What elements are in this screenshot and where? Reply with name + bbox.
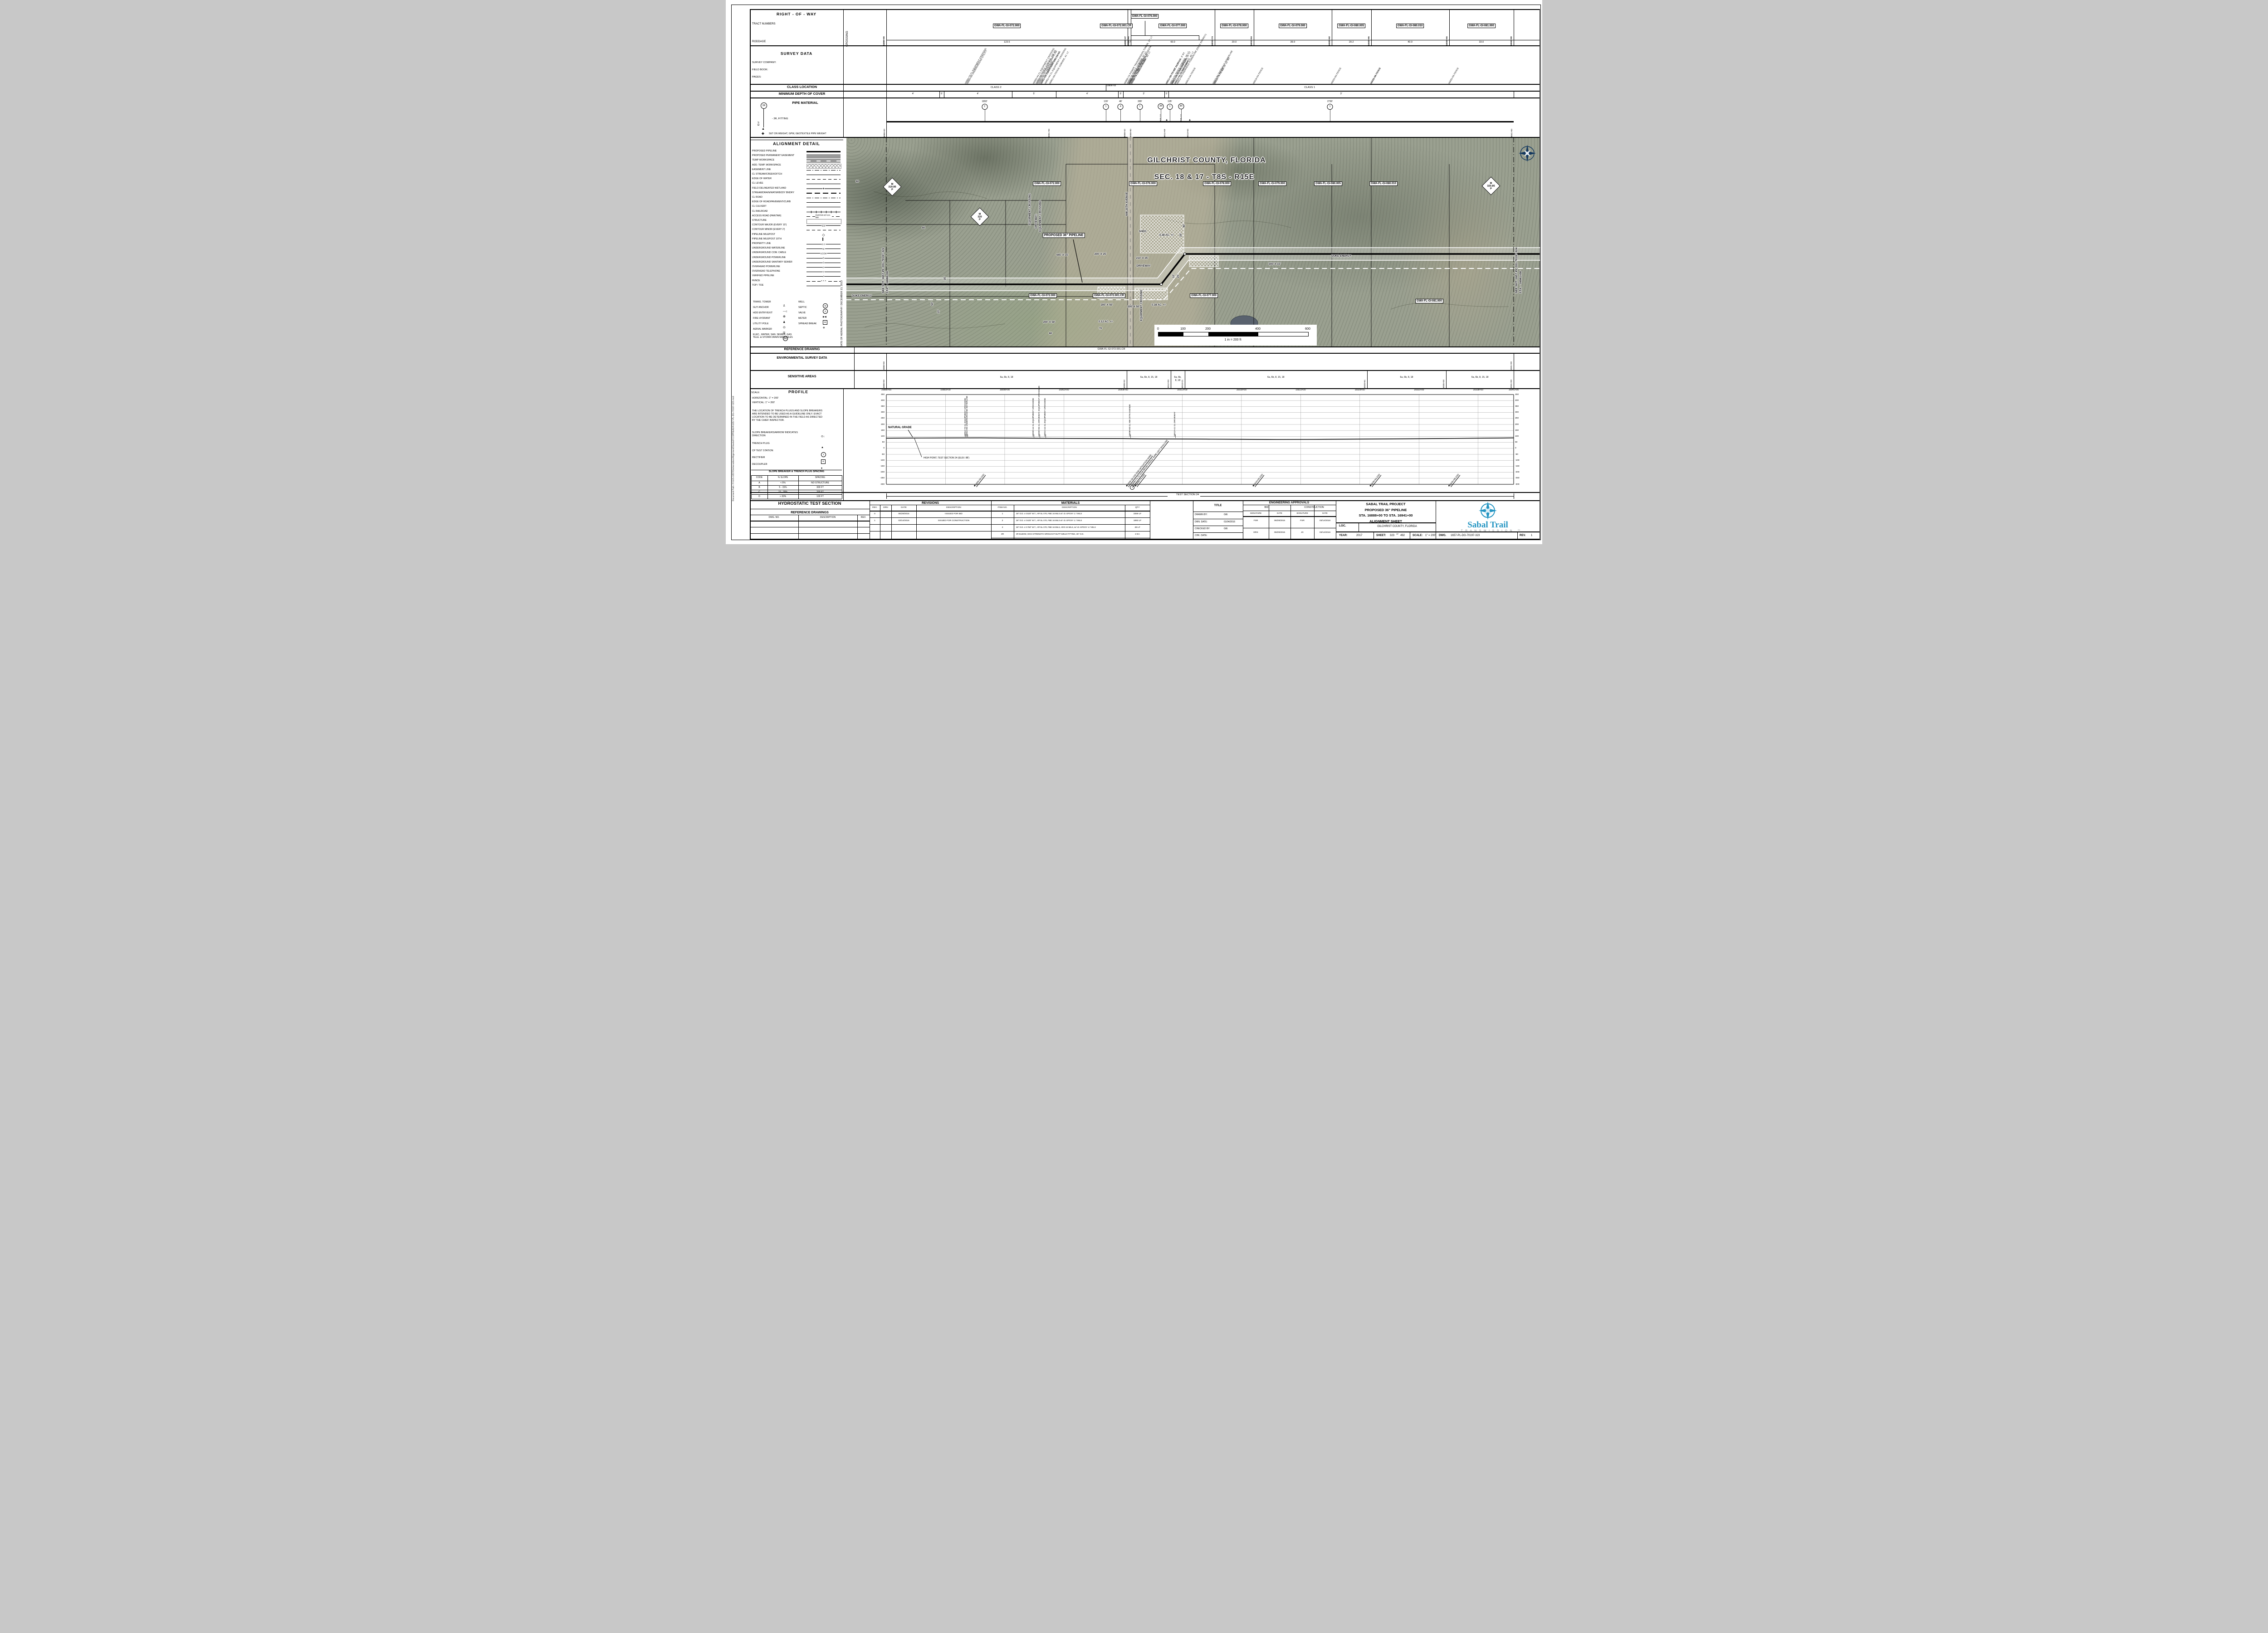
table-rule: [1410, 531, 1410, 540]
depth-boundary: [1164, 91, 1165, 97]
table-rule: [870, 531, 991, 531]
legend-item-label: CL ROAD: [752, 196, 763, 199]
section-rule: [750, 91, 1540, 92]
tract-number-box: GWA-FL-GI-072.001.CR: [1100, 24, 1133, 28]
table-rule: [1336, 522, 1436, 523]
legend-symbol-rail: [807, 210, 841, 214]
class-segment: CLASS 2: [991, 86, 1002, 89]
legend-item-label: PIPELINE MILEPOST: [752, 234, 775, 236]
material-qty: 1893 LF: [1134, 520, 1142, 522]
table-rule: [751, 470, 842, 470]
row-title: REFERENCE DRAWING: [784, 348, 820, 351]
bottom-col-rule: [1193, 500, 1193, 540]
table-rule: [750, 515, 870, 515]
map-annotation: 60: [856, 180, 859, 183]
tract-bracket: [1131, 35, 1199, 36]
row-title: CLASS LOCATION: [787, 85, 817, 89]
table-rule: [1359, 522, 1359, 531]
checked-by-label: CHECKED BY:: [1195, 528, 1210, 530]
spacing-col-header: % SLOPE: [778, 477, 788, 479]
loc-value: GILCHRIST COUNTY, FLORIDA: [1377, 525, 1417, 528]
bottom-col-rule: [870, 500, 870, 540]
table-rule: [751, 499, 842, 499]
map-annotation: 10': [1173, 274, 1175, 278]
map-scale-bar: 01002004006001 in = 200 ft: [1154, 325, 1317, 346]
sensitive-station: 16941+00: [1510, 380, 1513, 389]
crossing-tick: [1034, 434, 1034, 438]
approval-cell: JC: [1301, 531, 1304, 534]
table-rule: [750, 521, 870, 522]
survey-entry: 16915+75 P.I. 15° 35' 14" RT.: [1214, 57, 1231, 85]
legend-item-label: ACCESS ROAD (PAR/TAR): [752, 215, 781, 217]
sheet-label: SHEET:: [1376, 534, 1386, 537]
legend-item-label: FIELD DELINEATED WETLAND: [752, 187, 786, 190]
table-rule: [870, 517, 991, 518]
callout-leader: [1170, 109, 1170, 121]
profile-legend-label: SLOPE BREAKERS/ARROW INDICATES: [752, 432, 798, 434]
sensitive-value: 6a, 6b, 8, 18: [1000, 376, 1013, 379]
elev-label-left: 400: [881, 400, 885, 402]
tract-number-box: GWA-FL-GI-081.000: [1467, 24, 1496, 28]
sensitive-station: 16913+21: [1182, 380, 1184, 389]
table-rule: [891, 505, 892, 540]
project-line: SABAL TRAIL PROJECT: [1366, 502, 1405, 506]
milepost-text: M320P: [978, 213, 982, 221]
elev-label-right: 450: [1515, 394, 1519, 396]
milepost-text: M320.85P: [1487, 182, 1495, 190]
pipe-item-circle: 2: [982, 104, 987, 110]
legend-MH-icon: MH: [783, 334, 788, 341]
sensitive-station: 16912+03: [1168, 380, 1170, 389]
table-rule: [751, 475, 842, 476]
profile-scale-label: SCALE:: [751, 392, 760, 395]
table-rule: [1125, 505, 1125, 540]
elev-label-right: 250: [1515, 417, 1519, 419]
depth-boundary: [1118, 91, 1119, 97]
elev-label-right: -200: [1515, 471, 1520, 473]
spacing-table-title: SLOPE BREAKER & TRENCH PLUG SPACING: [769, 471, 824, 473]
map-section-title: SEC. 18 & 17 - T8S - R15E: [1154, 173, 1255, 181]
map-annotation: SHED: [1139, 230, 1147, 233]
roddage-value: 43.0: [1170, 41, 1175, 44]
tract-boundary: [1254, 9, 1254, 45]
scale-label: SCALE:: [1413, 534, 1422, 537]
crossing-tick: [1040, 434, 1040, 438]
elev-label-left: 150: [881, 429, 885, 432]
outer-frame: [731, 5, 732, 540]
map-annotation: 35': [944, 277, 947, 280]
legend-symbol-mp10: ▍: [807, 238, 841, 242]
material-item: 4: [1002, 526, 1003, 529]
section-rule: [750, 97, 1540, 98]
legend-symbol-label: AERIAL MARKER: [753, 328, 772, 331]
roddage-value: 20.0: [1232, 41, 1237, 44]
see-sheet-note: STA. - 16941+00: [1520, 271, 1523, 293]
legend-symbol-thin: [807, 182, 841, 186]
spacing-cell: 100 FT: [816, 496, 824, 498]
map-parcel-label: GWA-FL-GI-072.000: [1033, 181, 1061, 186]
table-rule: [916, 505, 917, 540]
elev-label-right: 50: [1515, 441, 1517, 444]
map-parcel-label: GWA-FL-GI-080.005: [1314, 181, 1342, 186]
env-station: 16941+00: [1510, 361, 1513, 371]
pipe-item-circle: 1: [1327, 104, 1333, 110]
outer-frame: [1540, 5, 1541, 540]
material-qty: 3359 LF: [1134, 513, 1142, 515]
aerial-map: [846, 137, 1540, 346]
approvals-col-header: SIGNATURE: [1296, 512, 1308, 515]
test-section-tick: [886, 493, 887, 499]
row-title: SURVEY DATA: [781, 52, 812, 56]
contour-line: [865, 323, 1005, 328]
tract-number-box: GWA-FL-GI-080.010: [1396, 24, 1424, 28]
table-rule: [1243, 511, 1336, 511]
legend-symbol-label: HDD ENTRY/EXIT: [753, 312, 772, 314]
roddage-value: 123.5: [1004, 41, 1010, 44]
crossing-tick: [1175, 434, 1176, 438]
map-annotation: 0.38 AC. +/-: [1152, 304, 1166, 307]
legend-item-label: PROPERTY LINE: [752, 243, 771, 245]
legend-symbol-lbl: E: [807, 256, 841, 260]
alignment-sheet: RIGHT - OF - WAY TRACT NUMBERS RODDAGE C…: [726, 0, 1542, 544]
map-parcel-label: GWA-FL-GI-078.000: [1203, 181, 1231, 186]
table-rule: [750, 509, 870, 509]
roddage-value: 1.7: [1127, 41, 1131, 44]
tract-boundary: [1215, 9, 1215, 45]
revision-cell: 1: [874, 520, 875, 522]
test-section-label: TEST SECTION 24: [1175, 493, 1200, 496]
weight-marker-icon: ✚: [762, 132, 764, 136]
elev-label-right: 350: [1515, 405, 1519, 408]
profile-station: 16918+00: [1237, 389, 1246, 391]
row-title: RIGHT - OF - WAY: [777, 12, 816, 16]
pipe-item-circle: 1: [1103, 104, 1109, 110]
year-value: 2017: [1356, 534, 1362, 537]
map-annotation: NW 20TH AVENUE: [1126, 192, 1129, 216]
map-annotation: DUKE ENERGY: [1331, 255, 1351, 258]
see-sheet-note: SEE SHT. 1657-PL-DG-70197-322: [882, 248, 885, 293]
table-rule: [1290, 505, 1291, 540]
depth-value: 5': [941, 93, 943, 96]
map-annotation: 200' X 50': [1128, 306, 1140, 308]
legend-symbol-lbl: P: [807, 265, 841, 269]
pipe-item-circle: 1: [1167, 104, 1173, 110]
table-rule: [1269, 505, 1269, 540]
spacing-cell: 200 FT: [816, 491, 824, 493]
table-rule: [991, 505, 1150, 505]
bottom-col-rule: [1336, 500, 1336, 540]
elev-label-right: -300: [1515, 483, 1520, 486]
legend-symbol-lbl: W: [807, 247, 841, 251]
fitting-marker: ▲: [1188, 119, 1191, 122]
roddage-label: RODDAGE: [752, 40, 766, 43]
legend-item-label: CL STREAM/CREEK/DITCH: [752, 173, 782, 175]
legend-symbol-label: FIRE HYDRANT: [753, 317, 770, 320]
elev-label-right: 300: [1515, 411, 1519, 414]
pipe-length: 2736': [1327, 101, 1333, 103]
legend-symbol-ver: ∕∕: [807, 274, 841, 278]
row-title: PIPE MATERIAL: [792, 101, 818, 105]
material-desc: 3R ELBOW, HIGH STRENGTH WROUGHT BUTT-WEL…: [1016, 533, 1084, 536]
refdwg-col-header: DWG. NO.: [769, 517, 780, 519]
col-rule: [843, 388, 844, 500]
legend-symbol-thin: [807, 284, 841, 288]
legend-symbol-label: GUY ANCHOR: [753, 307, 769, 309]
map-annotation: 80: [1049, 332, 1052, 335]
spacing-cell: A: [758, 482, 760, 484]
col-rule: [854, 346, 855, 388]
map-annotation: 200' X 50': [1101, 304, 1113, 307]
scale-tick: 0: [1157, 327, 1159, 331]
depth-boundary: [1168, 91, 1169, 97]
pipe-item-circle: 3R: [1178, 103, 1184, 109]
profile-station: 16941+00: [1509, 389, 1519, 391]
trench-marker-icon: ▲: [762, 127, 765, 131]
legend-item-label: TOP / TOE: [752, 284, 763, 287]
outer-frame: [731, 5, 1541, 5]
profile-legend-label: RECTIFIER: [752, 457, 765, 459]
dwg-value: 1657-PL-DG-70197-323: [1451, 534, 1480, 537]
legend-item-label: CONTOUR MAJOR (EVERY 10'): [752, 224, 787, 226]
scale-tick: 100: [1180, 327, 1186, 331]
chk-date-label: CHK. DATE:: [1195, 535, 1207, 537]
legend-symbol-label: SEPTIC: [798, 307, 807, 309]
legend-symbol-marsh: ◈: [807, 187, 841, 191]
legend-item-label: VERIFIED PIPELINE: [752, 275, 774, 277]
revision-cell: 03/14/2016: [898, 520, 909, 522]
table-rule: [750, 533, 870, 534]
spacing-cell: 5 - 15%: [779, 487, 787, 489]
sheet-total: 492: [1400, 534, 1405, 537]
profile-station: 16913+00: [1177, 389, 1187, 391]
map-annotation: 70: [1099, 327, 1102, 330]
map-annotation: DUKE ENERGY: [852, 295, 872, 297]
elev-label-left: 200: [881, 424, 885, 426]
tract-boundary: [1514, 9, 1514, 45]
elev-label-right: 100: [1515, 435, 1519, 438]
map-annotation: 80: [922, 227, 925, 229]
test-section-tick: [1514, 493, 1514, 499]
approval-cell: 03/14/2016: [1320, 520, 1330, 522]
pipe-id-label: ID #: [758, 122, 760, 126]
revisions-col-header: REV.: [872, 507, 877, 509]
profile-note: THE LOCATION OF TRENCH PLUGS AND SLOPE B…: [752, 409, 825, 422]
legend-item-label: UNDERGROUND POWERLINE: [752, 257, 786, 259]
pipe-length: 1893': [982, 101, 987, 103]
legend-item-label: PROPOSED PIPELINE: [752, 150, 777, 152]
roddage-value: 39.9: [1290, 41, 1295, 44]
legend-symbol-label: VALVE: [798, 312, 806, 314]
material-desc: 36" O.D. x 0.750" W.T., API 5L X70, FBE …: [1016, 526, 1096, 529]
spacing-cell: NO STRUCTURE: [811, 482, 829, 484]
legend-symbol-label: UTILITY POLE: [753, 323, 769, 325]
depth-boundary: [886, 91, 887, 97]
sensitive-boundary: [1514, 370, 1514, 388]
callout-leader: [1106, 109, 1106, 121]
table-rule: [798, 475, 799, 499]
legend-symbol-dashdot: [807, 168, 841, 172]
elev-label-left: 350: [881, 405, 885, 408]
table-rule: [1193, 526, 1243, 526]
sensitive-station: 16928+61: [1364, 380, 1366, 389]
table-rule: [991, 524, 1150, 525]
legend-symbol-lbl: S: [807, 261, 841, 265]
frame: [750, 539, 1540, 540]
map-parcel-label: GWA-FL-GI-072.000: [1029, 293, 1057, 298]
legend-title: ALIGNMENT DETAIL: [773, 142, 820, 146]
map-annotation: 200' X 50': [1043, 321, 1056, 324]
drawn-by-label: DRAWN BY:: [1195, 514, 1207, 516]
table-rule: [1193, 519, 1243, 519]
legend-symbol-label: WELL: [798, 301, 805, 303]
class-boundary-station: 16906+53: [1107, 85, 1116, 87]
env-station: 16888+00: [883, 361, 885, 371]
tract-number-box: GWA-FL-GI-079.000: [1279, 24, 1307, 28]
map-annotation: DRIVEWAY,: [1035, 214, 1038, 229]
material-item: 1: [1002, 513, 1003, 515]
revisions-col-header: DESCRIPTION: [946, 507, 961, 509]
map-parcel-label: GWA-FL-GI-079.000: [1258, 181, 1286, 186]
approvals-col-header: DATE: [1322, 512, 1327, 515]
natural-grade-line: [886, 438, 1514, 440]
bottom-col-rule: [991, 500, 992, 540]
map-annotation: EQUIPMENT CROSSING: [1029, 194, 1031, 225]
legend-symbol-lbl: 600: [807, 224, 841, 228]
spacing-cell: C: [758, 491, 760, 493]
table-rule: [870, 505, 991, 505]
roddage-value: 33.0: [1479, 41, 1484, 44]
elev-label-left: 100: [881, 435, 885, 438]
test-section-line: [886, 496, 1168, 497]
material-desc: 36" O.D. x 0.625" W.T., API 5L X70, FBE …: [1016, 520, 1082, 522]
map-annotation: 25': [1180, 233, 1183, 237]
map-annotation: 25': [1177, 274, 1180, 278]
tract-number-box: GWA-FL-GI-077.000: [1159, 24, 1187, 28]
pipe-id-circle: 3R: [761, 102, 767, 109]
table-rule: [750, 527, 870, 527]
contour-line: [1391, 303, 1509, 309]
profile-crossing-label: 16900+95 CL DRIVEWAY, EQUIPMENT CROSSING: [1038, 385, 1041, 437]
dwg-label: DWG.: [1439, 534, 1446, 537]
tract-boundary-station: 16941+00: [1510, 36, 1513, 46]
tract-boundary: [1332, 9, 1332, 45]
elev-label-left: 450: [881, 394, 885, 396]
revisions-col-header: DATE: [901, 507, 906, 509]
pipe-length: 289': [1138, 101, 1142, 103]
map-annotation: EQUIPMENT CROSSING: [1140, 290, 1143, 321]
table-rule: [991, 531, 1150, 531]
checked-by-value: GIE: [1224, 528, 1228, 530]
rev-label: REV.: [1520, 534, 1525, 537]
env-boundary: [1514, 353, 1514, 370]
env-boundary: [886, 353, 887, 370]
legend-symbol-dashed: [807, 177, 841, 181]
approval-cell: 06/29/2015: [1274, 531, 1285, 534]
depth-value: 4': [977, 93, 979, 96]
table-rule: [991, 511, 1150, 512]
revision-cell: ISSUED FOR BID: [945, 513, 963, 515]
table-rule: [751, 475, 752, 499]
refdwg-col-header: REV.: [861, 517, 866, 519]
legend-symbol-thin: [807, 173, 841, 177]
see-sheet-note: STA. - 16888+00: [886, 271, 890, 293]
sabal-trail-logo-icon: [1478, 501, 1498, 521]
elev-label-left: 250: [881, 417, 885, 419]
spacing-cell: 15 - 30%: [778, 491, 787, 493]
profile-station: 16928+00: [1355, 389, 1365, 391]
table-rule: [880, 505, 880, 540]
pipe-fitting-label: - 3R, FITTING: [772, 118, 788, 121]
class-boundary: [1106, 84, 1106, 91]
legend-symbol-fence: × × ×: [807, 279, 841, 283]
fitting-marker: ▲: [1165, 119, 1168, 122]
tract-bracket: [1145, 21, 1145, 35]
table-rule: [1314, 505, 1315, 540]
sensitive-value: 6a, 6b, 8, 15, 18: [1267, 376, 1285, 379]
table-rule: [767, 475, 768, 499]
legend-item-label: PIPELINE MILEPOST 10TH: [752, 238, 782, 240]
bottom-col-rule: [1436, 500, 1436, 540]
pipe-id-line: [763, 108, 764, 127]
document-path: Document Path: H:\GIS-1657\Deliverables\…: [733, 396, 735, 501]
profile-station: 16898+00: [1000, 389, 1010, 391]
logo-name: Sabal Trail: [1467, 521, 1508, 530]
profile-legend-label: DECOUPLER: [752, 463, 767, 466]
depth-value: 4': [912, 93, 914, 96]
scale-tick: 200: [1205, 327, 1211, 331]
revision-cell: ISSUED FOR CONSTRUCTION: [938, 520, 969, 522]
frame: [750, 9, 1540, 10]
table-rule: [991, 538, 1150, 538]
profile-legend-slope-icon: ⊙↓: [821, 432, 825, 439]
sensitive-boundary: [1185, 370, 1185, 388]
profile-station: 16903+00: [1059, 389, 1069, 391]
approvals-col-header: DATE: [1277, 512, 1282, 515]
tract-boundary: [1371, 9, 1372, 45]
depth-boundary: [1056, 91, 1056, 97]
legend-symbol-mp: ◇: [807, 233, 841, 237]
spacing-col-header: SPACING: [815, 477, 825, 479]
col-rule: [843, 9, 844, 137]
drn-date-value: 01/04/2016: [1224, 521, 1235, 523]
material-qty: 48 LF: [1134, 526, 1140, 529]
legend-spread-icon: ◆: [823, 323, 825, 331]
tract-boundary: [1449, 9, 1450, 45]
map-annotation: 15': [938, 310, 940, 313]
legend-item-label: UNDERGROUND WATERLINE: [752, 247, 785, 249]
map-annotation: 200' X 25': [1095, 253, 1107, 256]
legend-symbol-lbl: T: [807, 270, 841, 274]
profile-station: 16923+00: [1295, 389, 1305, 391]
scale-value: 1" = 200': [1425, 534, 1436, 537]
callout-leader: [1120, 109, 1121, 121]
reference-drawing-value: GWA-FL-GI-072.001.CR: [1097, 348, 1125, 351]
approvals-col-header: SIGNATURE: [1250, 512, 1261, 515]
hydro-title: HYDROSTATIC TEST SECTION: [778, 502, 841, 506]
scale-tick: 400: [1255, 327, 1261, 331]
profile-crossing-label: 16912+41 CL DRIVEWAY: [1174, 412, 1176, 437]
depth-value: 3': [1340, 93, 1342, 96]
tract-boundary-station: 16935+55: [1446, 36, 1448, 46]
table-rule: [1243, 505, 1336, 505]
legend-item-label: UNDERGROUND COM. CABLE: [752, 252, 786, 254]
profile-v-scale: VERTICAL: 1" = 200': [752, 402, 775, 405]
map-parcel-label: GWA-FL-GI-080.010: [1369, 181, 1398, 186]
legend-item-label: EDGE OF WATER: [752, 178, 772, 180]
table-rule: [1374, 531, 1374, 540]
project-line: PROPOSED 36" PIPELINE: [1365, 508, 1407, 512]
map-annotation: 50': [931, 302, 934, 306]
